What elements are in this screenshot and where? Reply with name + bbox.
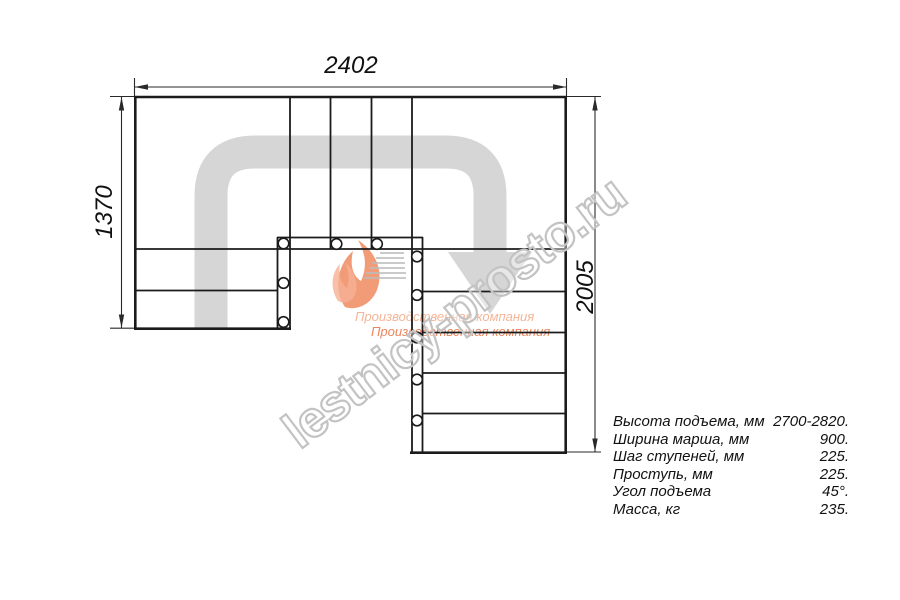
dimension-width-label: 2402 <box>324 52 377 80</box>
spec-value: 2700-2820. <box>773 413 849 431</box>
spec-row: Высота подъема, мм 2700-2820. <box>613 413 849 431</box>
spec-row: Проступь, мм 225. <box>613 466 849 484</box>
spec-value: 225. <box>820 466 849 484</box>
spec-value: 225. <box>820 448 849 466</box>
spec-row: Угол подъема 45°. <box>613 483 849 501</box>
staircase-plan-drawing: Производственная компания Производственн… <box>0 0 900 600</box>
spec-value: 45°. <box>822 483 849 501</box>
dimension-left-height-label: 1370 <box>91 185 119 238</box>
spec-label: Проступь, мм <box>613 466 713 484</box>
spec-table: Высота подъема, мм 2700-2820. Ширина мар… <box>613 413 849 519</box>
spec-label: Масса, кг <box>613 501 680 519</box>
spec-label: Высота подъема, мм <box>613 413 765 431</box>
spec-label: Угол подъема <box>613 483 711 501</box>
spec-row: Шаг ступеней, мм 225. <box>613 448 849 466</box>
spec-value: 235. <box>820 501 849 519</box>
spec-label: Шаг ступеней, мм <box>613 448 744 466</box>
spec-row: Масса, кг 235. <box>613 501 849 519</box>
dimension-right-height-label: 2005 <box>572 260 600 313</box>
spec-value: 900. <box>820 431 849 449</box>
spec-row: Ширина марша, мм 900. <box>613 431 849 449</box>
spec-label: Ширина марша, мм <box>613 431 749 449</box>
